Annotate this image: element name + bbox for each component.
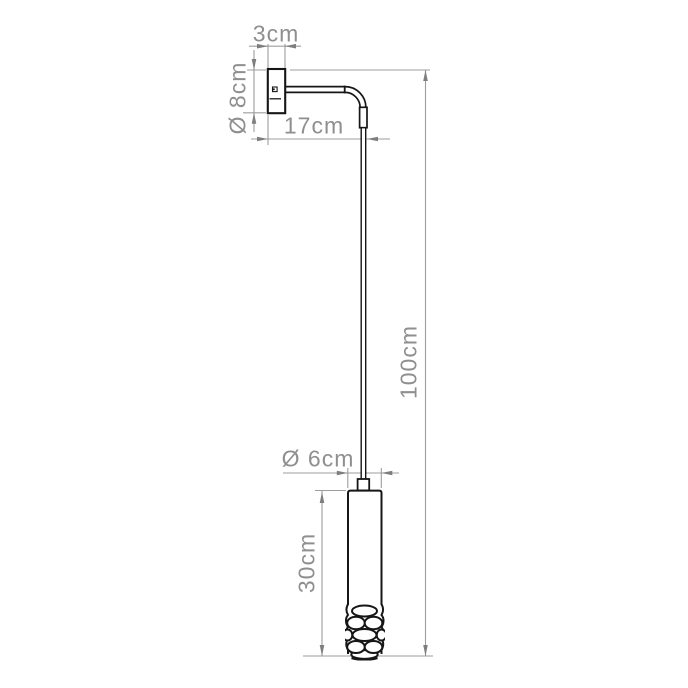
lamp-line-drawing [0,0,688,688]
technical-drawing-canvas: 3cm Ø 8cm 17cm 100cm Ø 6cm 30cm [0,0,688,688]
lamp-geometry [268,69,387,660]
wall-plate [268,69,285,113]
dim-label-bracket-depth: 3cm [253,22,299,45]
dim-label-shade-diameter: Ø 6cm [282,448,355,471]
dim-label-shade-height: 30cm [296,533,319,593]
dim-30cm-geometry [315,491,346,657]
lamp-shade-body [348,491,382,605]
shade-bubble-texture [343,604,387,660]
arrowhead [320,645,325,656]
arrowhead [320,492,325,503]
arrowhead [252,113,257,124]
mounting-arm [286,86,366,108]
shade-collar [358,479,370,491]
arrowhead [423,70,428,81]
suspension-rod [361,128,366,480]
arrowhead [423,645,428,656]
dim-label-arm-length: 17cm [284,115,344,138]
arrowhead [257,137,268,142]
dim-label-overall-height: 100cm [398,325,421,399]
arm-sleeve [360,107,367,127]
arrowhead [252,59,257,70]
plate-keyhole-dot [273,88,275,90]
arrowhead [367,137,378,142]
dim-label-bracket-diameter: Ø 8cm [227,62,250,135]
arrowhead [381,471,392,476]
